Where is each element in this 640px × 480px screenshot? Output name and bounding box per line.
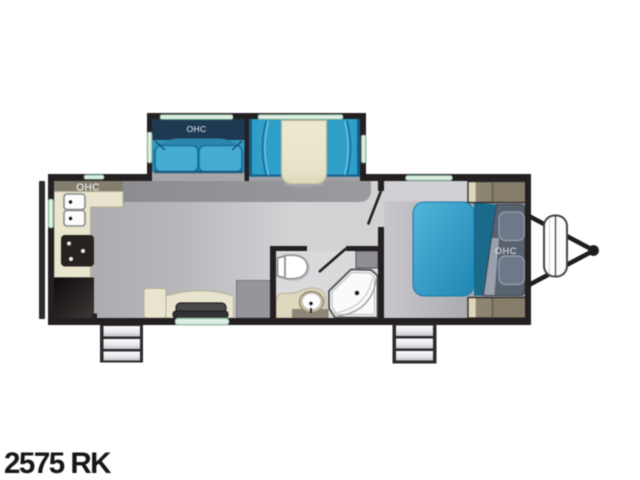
svg-text:2575 RK: 2575 RK: [4, 447, 112, 480]
svg-text:OHC: OHC: [495, 246, 517, 256]
svg-text:OHC: OHC: [187, 124, 207, 134]
